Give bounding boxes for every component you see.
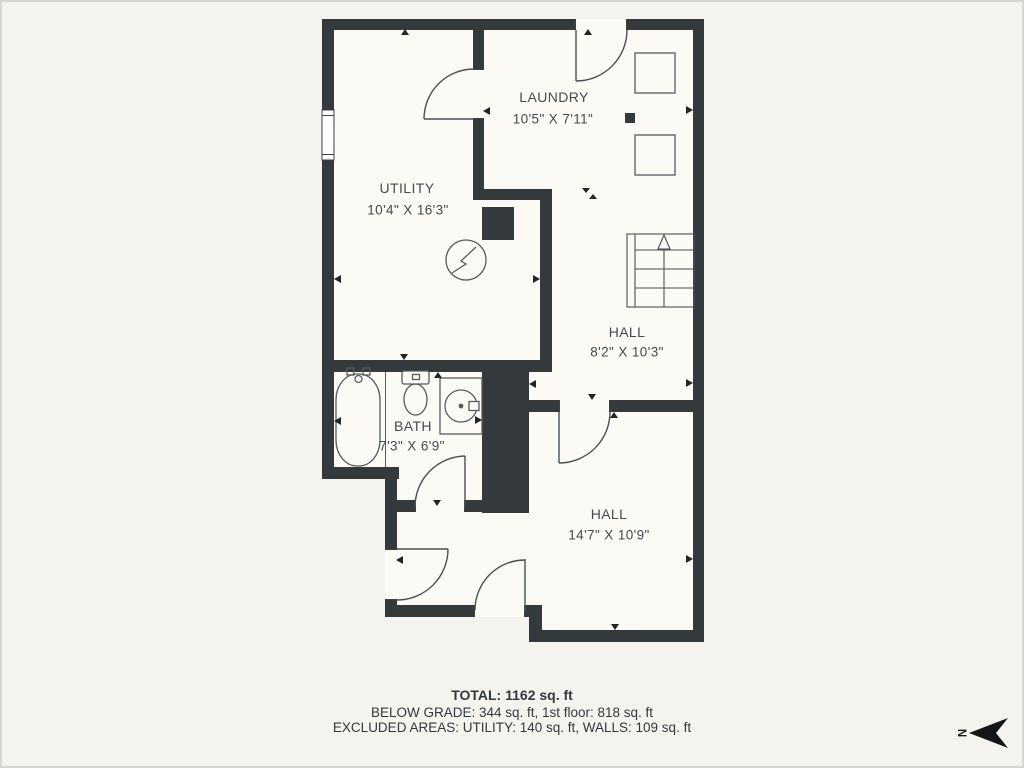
room-dims-hall-upper: 8'2" X 10'3": [590, 345, 664, 360]
summary-excluded: EXCLUDED AREAS: UTILITY: 140 sq. ft, WAL…: [2, 720, 1022, 735]
wall-segment: [385, 467, 397, 549]
wall-segment: [529, 400, 559, 412]
room-label-hall-upper: HALL: [609, 324, 646, 340]
wall-segment: [322, 160, 334, 479]
room-dims-bath: 7'3" X 6'9": [379, 439, 445, 454]
wall-segment: [482, 360, 529, 513]
wall-segment: [465, 500, 482, 512]
wall-segment: [610, 400, 693, 412]
room-dims-hall-lower: 14'7" X 10'9": [568, 528, 650, 543]
washer-icon: [635, 53, 675, 93]
summary-total: TOTAL: 1162 sq. ft: [2, 687, 1022, 703]
dryer-icon: [635, 135, 675, 175]
wall-segment: [322, 19, 334, 110]
wall-segment: [529, 630, 704, 642]
north-label: N: [953, 726, 967, 740]
wall-segment: [473, 119, 484, 189]
room-dims-laundry: 10'5" X 7'11": [513, 112, 594, 127]
summary-below-grade: BELOW GRADE: 344 sq. ft, 1st floor: 818 …: [2, 705, 1022, 720]
room-label-bath: BATH: [394, 418, 432, 434]
room-dims-utility: 10'4" X 16'3": [367, 203, 449, 218]
window-icon: [322, 110, 334, 160]
wall-segment: [473, 30, 484, 69]
wall-post: [482, 207, 514, 240]
wall-post: [625, 113, 635, 123]
wall-segment: [540, 200, 552, 372]
wall-segment: [397, 500, 415, 512]
wall-segment: [385, 605, 474, 617]
room-label-hall-lower: HALL: [591, 506, 628, 522]
room-label-utility: UTILITY: [380, 180, 435, 196]
room-label-laundry: LAUNDRY: [519, 89, 588, 105]
wall-segment: [322, 19, 704, 30]
wall-segment: [693, 19, 704, 642]
toilet-icon: [402, 371, 429, 415]
bathtub-icon: [336, 368, 380, 466]
wall-segment: [473, 189, 552, 200]
floorplan-canvas: LAUNDRY 10'5" X 7'11" UTILITY 10'4" X 16…: [0, 0, 1024, 768]
